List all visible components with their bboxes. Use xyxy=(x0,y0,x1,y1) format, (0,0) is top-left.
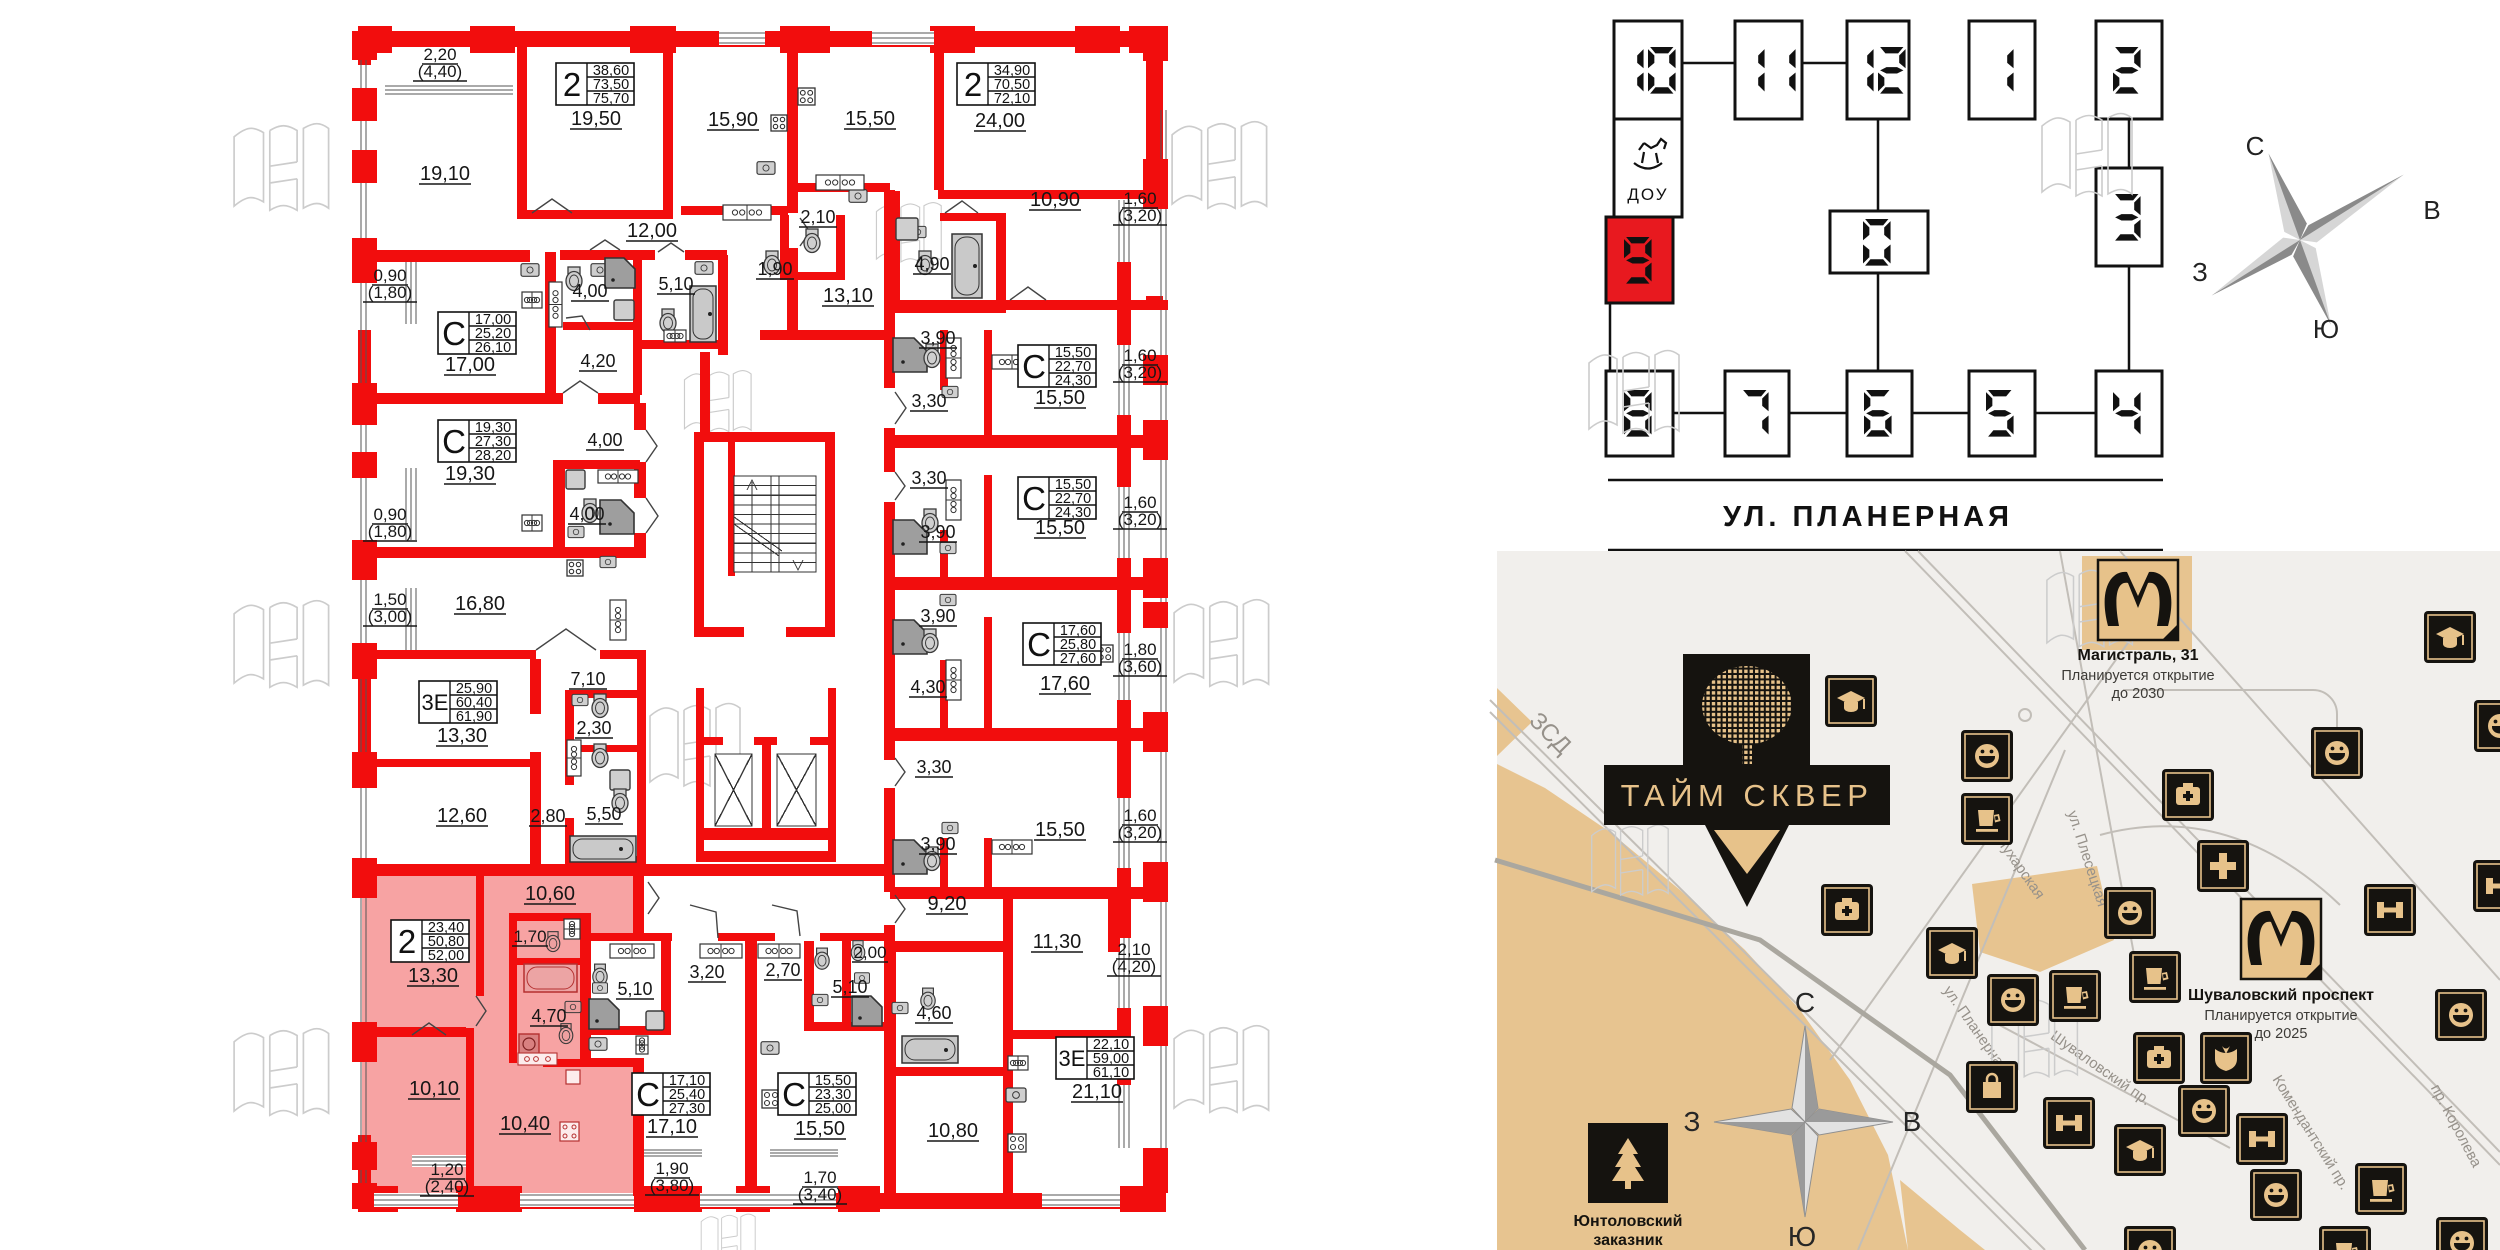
svg-text:ТАЙМ СКВЕР: ТАЙМ СКВЕР xyxy=(1621,777,1874,813)
svg-text:25,00: 25,00 xyxy=(815,1101,851,1117)
svg-text:4,00: 4,00 xyxy=(587,430,622,450)
svg-text:2,10: 2,10 xyxy=(800,207,835,227)
svg-text:3Е: 3Е xyxy=(1059,1046,1086,1071)
svg-text:4,20: 4,20 xyxy=(580,351,615,371)
svg-text:3,30: 3,30 xyxy=(911,391,946,411)
svg-text:1,70: 1,70 xyxy=(513,927,546,946)
svg-text:(4,20): (4,20) xyxy=(1112,957,1156,976)
svg-text:Планируется открытие: Планируется открытие xyxy=(2061,668,2214,684)
svg-text:13,30: 13,30 xyxy=(437,725,487,747)
svg-text:4,30: 4,30 xyxy=(910,677,945,697)
svg-text:7,10: 7,10 xyxy=(570,669,605,689)
svg-text:4,00: 4,00 xyxy=(569,504,604,524)
svg-text:С: С xyxy=(782,1076,806,1113)
svg-text:УЛ. ПЛАНЕРНАЯ: УЛ. ПЛАНЕРНАЯ xyxy=(1723,501,2013,533)
svg-text:28,20: 28,20 xyxy=(475,448,511,464)
svg-text:С: С xyxy=(1027,626,1051,663)
svg-text:15,50: 15,50 xyxy=(845,108,895,130)
svg-text:3Е: 3Е xyxy=(422,690,449,715)
svg-text:5,50: 5,50 xyxy=(586,804,621,824)
svg-text:9,20: 9,20 xyxy=(928,893,967,915)
svg-text:15,50: 15,50 xyxy=(1035,517,1085,539)
svg-text:В: В xyxy=(1903,1106,1922,1137)
svg-text:4,00: 4,00 xyxy=(572,281,607,301)
svg-text:(3,20): (3,20) xyxy=(1118,363,1162,382)
svg-text:С: С xyxy=(1022,348,1046,385)
svg-text:З: З xyxy=(2192,257,2208,287)
svg-text:2: 2 xyxy=(563,66,581,103)
svg-text:13,10: 13,10 xyxy=(823,285,873,307)
svg-text:(3,80): (3,80) xyxy=(650,1176,694,1195)
svg-text:3,20: 3,20 xyxy=(689,962,724,982)
svg-text:17,00: 17,00 xyxy=(445,354,495,376)
svg-text:12,60: 12,60 xyxy=(437,805,487,827)
svg-text:16,80: 16,80 xyxy=(455,593,505,615)
svg-text:2,70: 2,70 xyxy=(765,960,800,980)
svg-text:5,10: 5,10 xyxy=(617,979,652,999)
svg-text:до 2025: до 2025 xyxy=(2255,1026,2308,1042)
svg-text:до 2030: до 2030 xyxy=(2112,686,2165,702)
svg-text:15,50: 15,50 xyxy=(1035,387,1085,409)
svg-text:11,30: 11,30 xyxy=(1033,931,1082,953)
svg-text:3,90: 3,90 xyxy=(920,522,955,542)
svg-text:12,00: 12,00 xyxy=(627,220,677,242)
svg-text:(3,20): (3,20) xyxy=(1118,823,1162,842)
svg-text:61,10: 61,10 xyxy=(1093,1065,1129,1081)
svg-text:19,50: 19,50 xyxy=(571,108,621,130)
svg-text:27,60: 27,60 xyxy=(1060,651,1096,667)
svg-text:С: С xyxy=(442,315,466,352)
svg-text:З: З xyxy=(1684,1106,1701,1137)
svg-text:(3,00): (3,00) xyxy=(368,607,412,626)
svg-text:15,50: 15,50 xyxy=(795,1118,845,1140)
svg-text:19,10: 19,10 xyxy=(420,163,470,185)
svg-text:24,00: 24,00 xyxy=(975,110,1025,132)
svg-text:4,90: 4,90 xyxy=(914,254,949,274)
svg-text:17,60: 17,60 xyxy=(1040,673,1090,695)
svg-text:27,30: 27,30 xyxy=(669,1101,705,1117)
svg-text:С: С xyxy=(636,1076,660,1113)
svg-text:3,90: 3,90 xyxy=(920,328,955,348)
svg-text:15,90: 15,90 xyxy=(708,109,758,131)
svg-text:(3,20): (3,20) xyxy=(1118,206,1162,225)
svg-text:72,10: 72,10 xyxy=(994,91,1030,107)
svg-text:С: С xyxy=(1022,480,1046,517)
svg-text:Магистраль, 31: Магистраль, 31 xyxy=(2077,647,2198,664)
svg-text:Юнтоловский: Юнтоловский xyxy=(1574,1213,1683,1230)
svg-text:10,10: 10,10 xyxy=(409,1078,459,1100)
svg-text:3,90: 3,90 xyxy=(920,606,955,626)
svg-text:Ю: Ю xyxy=(2313,314,2339,344)
svg-text:75,70: 75,70 xyxy=(593,91,629,107)
svg-text:(4,40): (4,40) xyxy=(418,62,462,81)
svg-text:1,90: 1,90 xyxy=(757,259,792,279)
svg-text:(1,80): (1,80) xyxy=(368,522,412,541)
svg-text:Шуваловский проспект: Шуваловский проспект xyxy=(2188,987,2374,1004)
svg-text:(2,40): (2,40) xyxy=(425,1177,469,1196)
svg-text:4,70: 4,70 xyxy=(531,1006,566,1026)
svg-text:13,30: 13,30 xyxy=(408,965,458,987)
svg-text:2: 2 xyxy=(964,66,982,103)
svg-text:10,80: 10,80 xyxy=(928,1120,978,1142)
svg-text:2,30: 2,30 xyxy=(576,718,611,738)
svg-text:(3,20): (3,20) xyxy=(1118,510,1162,529)
svg-text:Ю: Ю xyxy=(1788,1221,1816,1250)
svg-text:С: С xyxy=(2246,131,2265,161)
svg-text:С: С xyxy=(442,423,466,460)
svg-text:5,10: 5,10 xyxy=(832,977,867,997)
svg-text:ДОУ: ДОУ xyxy=(1627,185,1668,204)
svg-text:3,90: 3,90 xyxy=(920,834,955,854)
svg-text:С: С xyxy=(1795,987,1815,1018)
svg-text:(3,40): (3,40) xyxy=(798,1185,842,1204)
svg-text:5,10: 5,10 xyxy=(658,274,693,294)
svg-text:(3,60): (3,60) xyxy=(1118,657,1162,676)
svg-text:3,30: 3,30 xyxy=(911,468,946,488)
svg-text:17,10: 17,10 xyxy=(647,1116,697,1138)
svg-text:10,40: 10,40 xyxy=(500,1113,550,1135)
svg-text:10,90: 10,90 xyxy=(1030,189,1080,211)
svg-text:10,60: 10,60 xyxy=(525,883,575,905)
svg-text:21,10: 21,10 xyxy=(1072,1081,1122,1103)
svg-text:В: В xyxy=(2423,195,2440,225)
svg-text:Планируется открытие: Планируется открытие xyxy=(2204,1008,2357,1024)
svg-text:4,60: 4,60 xyxy=(916,1003,951,1023)
svg-text:52,00: 52,00 xyxy=(428,948,464,964)
svg-text:2: 2 xyxy=(398,923,416,960)
svg-text:15,50: 15,50 xyxy=(1035,819,1085,841)
svg-text:2,80: 2,80 xyxy=(530,806,565,826)
svg-text:61,90: 61,90 xyxy=(456,709,492,725)
svg-text:заказник: заказник xyxy=(1593,1232,1663,1249)
svg-text:(1,80): (1,80) xyxy=(368,283,412,302)
svg-text:19,30: 19,30 xyxy=(445,463,495,485)
svg-text:3,30: 3,30 xyxy=(916,757,951,777)
svg-text:2,00: 2,00 xyxy=(853,943,886,962)
